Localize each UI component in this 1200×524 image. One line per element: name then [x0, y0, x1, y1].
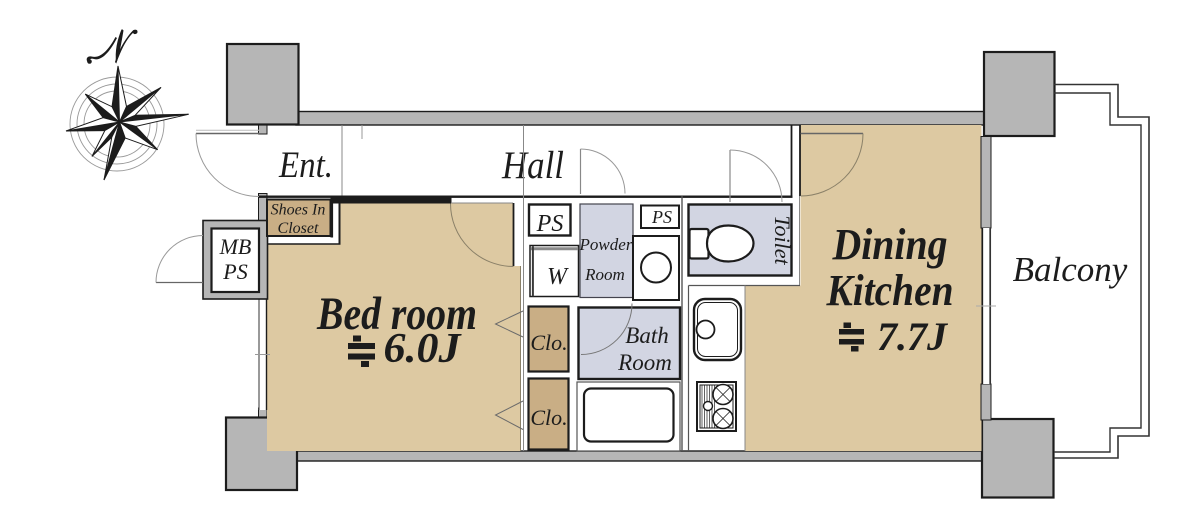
- svg-text:Dining: Dining: [832, 220, 948, 269]
- svg-text:Toilet: Toilet: [770, 215, 795, 265]
- svg-text:PS: PS: [651, 207, 672, 227]
- svg-text:Balcony: Balcony: [1013, 250, 1128, 289]
- svg-text:W: W: [547, 264, 569, 290]
- svg-text:Clo.: Clo.: [530, 330, 567, 355]
- svg-text:PS: PS: [536, 211, 564, 237]
- svg-text:Bath: Bath: [625, 323, 668, 348]
- svg-text:Clo.: Clo.: [530, 405, 567, 430]
- svg-text:PS: PS: [222, 259, 247, 284]
- svg-text:Room: Room: [584, 265, 625, 284]
- svg-text:Shoes In: Shoes In: [271, 202, 326, 219]
- svg-text:Closet: Closet: [278, 220, 319, 237]
- svg-text:Powder: Powder: [579, 235, 633, 254]
- svg-text:6.0J: 6.0J: [384, 326, 463, 372]
- svg-text:Room: Room: [617, 350, 672, 375]
- svg-text:Hall: Hall: [501, 144, 564, 187]
- svg-text:Kitchen: Kitchen: [826, 266, 954, 315]
- svg-text:7.7J: 7.7J: [877, 314, 949, 359]
- svg-text:MB: MB: [219, 234, 252, 259]
- svg-text:Ent.: Ent.: [278, 145, 333, 186]
